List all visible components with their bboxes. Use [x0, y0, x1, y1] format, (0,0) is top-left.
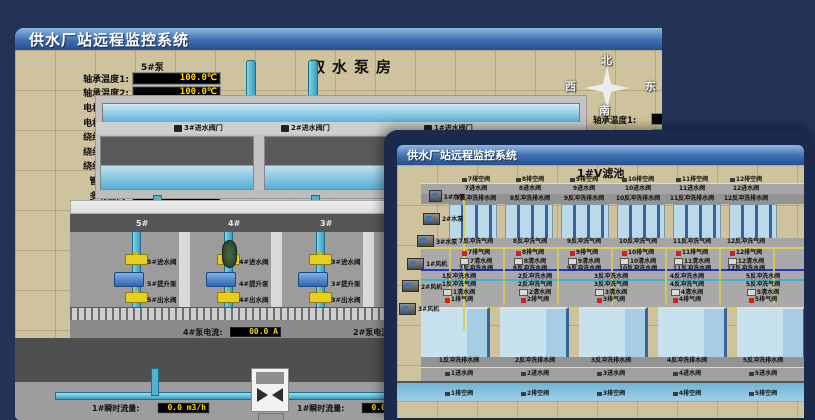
valve-label: 4排气阀 [679, 297, 701, 303]
valve-icon[interactable] [514, 258, 523, 265]
valve-icon[interactable] [749, 372, 754, 376]
valve-label: 3排气阀 [603, 297, 625, 303]
valve-label: 1清水阀 [453, 290, 475, 296]
backwash-drain-valve[interactable]: 9反冲洗排水阀 [557, 196, 611, 202]
valve-label: 3进水阀 [603, 371, 625, 377]
valve-label: 5排气阀 [755, 297, 777, 303]
valve-icon[interactable] [174, 125, 182, 132]
flow-value-left: 0.0 m3/h [157, 402, 210, 414]
filter-cell[interactable] [561, 204, 609, 240]
lower-clear-water-row: 1清水阀2清水阀3清水阀4清水阀5清水阀6清水阀 [421, 289, 804, 296]
inlet-valve-icon[interactable] [125, 254, 148, 265]
valve-label: 11进水阀 [679, 186, 705, 192]
front-window-title: 供水厂站远程监控系统 [407, 147, 517, 163]
valve-label: 9反冲洗气阀 [567, 239, 601, 245]
flow-label-left: 1#瞬时流量: [92, 403, 139, 414]
tank [222, 240, 237, 268]
flow-meter-base [258, 413, 284, 420]
backwash-water-valve[interactable]: 9反冲洗水阀 [557, 266, 611, 272]
clear-water-valve[interactable]: 3清水阀 [573, 289, 649, 296]
valve-icon[interactable] [521, 298, 526, 303]
inlet-valve[interactable]: 3进水阀 [573, 371, 649, 377]
inlet-valve[interactable]: 11进水阀 [665, 186, 719, 192]
backwash-drain-valve[interactable]: 6反冲洗排水阀 [801, 358, 804, 364]
panel-row: 轴承温度1: 100.0℃ [21, 71, 221, 86]
backwash-water-valve[interactable]: 10反冲洗水阀 [611, 266, 665, 272]
inlet-valve-label: 3#进水阀 [331, 256, 360, 266]
flow-meter[interactable] [251, 368, 289, 412]
upper-backwash-drain-row: 7反冲洗排水阀8反冲洗排水阀9反冲洗排水阀10反冲洗排水阀11反冲洗排水阀12反… [449, 196, 773, 202]
lift-pump-label: 4#提升泵 [239, 278, 268, 288]
inlet-valve-label: 5#进水阀 [147, 256, 176, 266]
drain-valve[interactable]: 11排空阀 [665, 177, 719, 183]
valve-icon[interactable] [674, 258, 683, 265]
valve-label: 3清水阀 [605, 290, 627, 296]
valve-icon[interactable] [622, 178, 627, 182]
back-window-title: 供水厂站远程监控系统 [29, 29, 189, 50]
valve-label: 3#进水阀门 [184, 123, 223, 133]
valve-label: 3反冲洗水阀 [594, 274, 628, 280]
scene-title: 取水泵房 [310, 56, 398, 77]
valve-icon[interactable] [620, 258, 629, 265]
valve-label: 11排空阀 [682, 177, 708, 183]
valve-label: 12反冲洗水阀 [727, 266, 765, 272]
valve-label: 1排空阀 [451, 391, 473, 397]
backwash-air-valve[interactable]: 5反冲洗气阀 [725, 282, 801, 288]
valve-label: 12进水阀 [733, 186, 759, 192]
valve-icon[interactable] [749, 392, 754, 396]
backwash-air-valve[interactable]: 1反冲洗气阀 [421, 282, 497, 288]
valve-label: 4反冲洗气阀 [670, 282, 704, 288]
backwash-drain-valve[interactable]: 2反冲洗排水阀 [497, 358, 573, 364]
drain-valve[interactable]: 4排空阀 [649, 391, 725, 397]
valve-label: 8排气阀 [522, 250, 544, 256]
upper-air-release-row: 7排气阀8排气阀9排气阀10排气阀11排气阀12排气阀 [449, 250, 773, 256]
compass: 北 西 南 东 [563, 52, 658, 118]
valve-label: 10排气阀 [628, 250, 654, 256]
valve-icon[interactable] [749, 298, 754, 303]
backwash-drain-valve[interactable]: 3反冲洗排水阀 [573, 358, 649, 364]
valve-icon[interactable] [673, 298, 678, 303]
equipment-label: 1#风机 [426, 259, 447, 268]
valve-label: 1反冲洗水阀 [442, 274, 476, 280]
clear-water-valve[interactable]: 6清水阀 [801, 289, 804, 296]
air-release-valve[interactable]: 9排气阀 [557, 250, 611, 256]
upper-clear-water-row: 7清水阀8清水阀9清水阀10清水阀11清水阀12清水阀 [449, 258, 773, 265]
flow-label-right: 1#瞬时流量: [297, 403, 344, 414]
backwash-water-valve[interactable]: 1反冲洗水阀 [421, 274, 497, 280]
ground [397, 401, 804, 418]
backwash-drain-valve[interactable]: 8反冲洗排水阀 [503, 196, 557, 202]
clear-water-valve[interactable]: 9清水阀 [557, 258, 611, 265]
outlet-valve-label: 5#出水阀 [147, 294, 176, 304]
pump-icon[interactable] [399, 303, 416, 315]
lift-pump[interactable] [298, 272, 328, 287]
compass-east: 东 [645, 78, 656, 94]
pump4-current-value: 00.0 A [229, 326, 282, 338]
pump4-current-label: 4#泵电流: [183, 327, 222, 338]
drain-valve[interactable]: 9排空阀 [557, 177, 611, 183]
valve-label: 2反冲洗排水阀 [515, 358, 555, 364]
valve-label: 7排空阀 [468, 177, 490, 183]
outlet-valve-label: 3#出水阀 [331, 294, 360, 304]
valve-icon[interactable] [673, 372, 678, 376]
valve-label: 12反冲洗排水阀 [724, 196, 768, 202]
compass-north: 北 [601, 52, 612, 68]
backwash-air-valve[interactable]: 12反冲洗气阀 [719, 239, 773, 245]
valve-label: 1反冲洗气阀 [442, 282, 476, 288]
valve-label: 11反冲洗气阀 [673, 239, 711, 245]
pump-icon[interactable] [417, 235, 434, 247]
drain-valve[interactable]: 8排空阀 [503, 177, 557, 183]
pump-bay: 3#进水阀 3#提升泵 3#出水阀 [282, 232, 374, 307]
air-release-valve[interactable]: 12排气阀 [719, 250, 773, 256]
pump-icon[interactable] [423, 213, 440, 225]
equipment-label: 3#风机 [418, 304, 439, 313]
lift-pump-label: 3#提升泵 [331, 278, 360, 288]
backwash-water-valve[interactable]: 12反冲洗水阀 [719, 266, 773, 272]
backwash-drain-valve[interactable]: 5反冲洗排水阀 [725, 358, 801, 364]
air-release-valve[interactable]: 3排气阀 [573, 297, 649, 303]
valve-icon[interactable] [676, 178, 681, 182]
valve-label: 5进水阀 [755, 371, 777, 377]
backwash-drain-valve[interactable]: 11反冲洗排水阀 [665, 196, 719, 202]
backwash-drain-valve[interactable]: 1反冲洗排水阀 [421, 358, 497, 364]
drain-valve[interactable]: 5排空阀 [725, 391, 801, 397]
valve-label: 2排气阀 [527, 297, 549, 303]
valve-icon[interactable] [521, 372, 526, 376]
valve-label: 2#进水阀门 [291, 123, 330, 133]
valve-icon[interactable] [673, 392, 678, 396]
inlet-valve[interactable]: 9进水阀 [557, 186, 611, 192]
valve-label: 8反冲洗水阀 [513, 266, 547, 272]
desktop: 供水厂站远程监控系统 取水泵房 5#泵 轴承温度1: 100.0℃ 轴承温度2:… [0, 0, 815, 420]
air-release-valve[interactable]: 10排气阀 [611, 250, 665, 256]
valve-icon[interactable] [519, 289, 528, 296]
inlet-valve-label: 4#进水阀 [239, 256, 268, 266]
valve-label: 7反冲洗水阀 [459, 266, 493, 272]
inlet-valve[interactable]: 2进水阀 [497, 371, 573, 377]
filter-pool-scene: 1#V滤池 1#水泵 2#水泵 3#水泵 1#风机 2# [397, 165, 804, 418]
clear-water-valve[interactable]: 11清水阀 [665, 258, 719, 265]
air-release-valve[interactable]: 5排气阀 [725, 297, 801, 303]
upper-inlet-valve-row: 7进水阀8进水阀9进水阀10进水阀11进水阀12进水阀 [449, 186, 773, 192]
valve-label: 5反冲洗气阀 [746, 282, 780, 288]
valve-label: 9清水阀 [578, 259, 600, 265]
pump-bay: 5#进水阀 5#提升泵 5#出水阀 [98, 232, 190, 307]
filter-cell[interactable] [579, 307, 648, 359]
back-window-titlebar[interactable]: 供水厂站远程监控系统 [15, 28, 662, 50]
valve-icon[interactable] [462, 251, 467, 256]
valve-label: 7反冲洗排水阀 [456, 196, 496, 202]
valve-label: 8排空阀 [522, 177, 544, 183]
backwash-air-valve[interactable]: 4反冲洗气阀 [649, 282, 725, 288]
flow-meter-valve-icon [257, 388, 283, 402]
valve-icon[interactable] [460, 258, 469, 265]
pump-bay: 4#进水阀 4#提升泵 4#出水阀 [190, 232, 282, 307]
flow-meter-display [256, 372, 284, 384]
valve-label: 9进水阀 [573, 186, 595, 192]
valve-label: 2反冲洗气阀 [518, 282, 552, 288]
outlet-valve-icon[interactable] [309, 292, 332, 303]
valve-icon[interactable] [595, 289, 604, 296]
valve-label: 11排气阀 [682, 250, 708, 256]
valve-label: 10反冲洗水阀 [619, 266, 657, 272]
backwash-air-valve[interactable]: 7反冲洗气阀 [449, 239, 503, 245]
inlet-valve[interactable]: 5进水阀 [725, 371, 801, 377]
valve-icon[interactable] [516, 178, 521, 182]
valve-label: 11反冲洗水阀 [673, 266, 711, 272]
inlet-pipe [246, 60, 256, 98]
filter-cell[interactable] [617, 204, 665, 240]
inlet-valve[interactable]: 7进水阀 [449, 186, 503, 192]
upper-backwash-air-row: 7反冲洗气阀8反冲洗气阀9反冲洗气阀10反冲洗气阀11反冲洗气阀12反冲洗气阀 [449, 239, 773, 245]
drain-valve[interactable]: 6排空阀 [801, 391, 804, 397]
backwash-air-valve[interactable]: 10反冲洗气阀 [611, 239, 665, 245]
filter-cell[interactable] [658, 307, 727, 359]
valve-label: 3反冲洗排水阀 [591, 358, 631, 364]
lower-drain-valve-row: 1排空阀2排空阀3排空阀4排空阀5排空阀6排空阀 [421, 391, 804, 397]
clear-water-valve[interactable]: 2清水阀 [497, 289, 573, 296]
valve-icon[interactable] [568, 258, 577, 265]
pump-icon[interactable] [429, 190, 442, 202]
backwash-drain-valve[interactable]: 7反冲洗排水阀 [449, 196, 503, 202]
valve-icon[interactable] [671, 289, 680, 296]
valve-label: 4进水阀 [679, 371, 701, 377]
backwash-air-valve[interactable]: 9反冲洗气阀 [557, 239, 611, 245]
valve-label: 10清水阀 [630, 259, 656, 265]
panel-value-led: 100.0℃ [132, 72, 221, 85]
equipment-item[interactable]: 2#水泵 [423, 208, 465, 231]
lower-inlet-valve-row: 1进水阀2进水阀3进水阀4进水阀5进水阀6进水阀 [421, 371, 804, 377]
valve-icon[interactable] [676, 251, 681, 256]
valve-label: 4排空阀 [679, 391, 701, 397]
valve-label: 7进水阀 [465, 186, 487, 192]
backwash-water-valve[interactable]: 8反冲洗水阀 [503, 266, 557, 272]
valve-icon[interactable] [516, 251, 521, 256]
window-filter-pool: 供水厂站远程监控系统 1#V滤池 1#水泵 2#水泵 3#水泵 1#风机 [384, 130, 815, 420]
drain-valve[interactable]: 7排空阀 [449, 177, 503, 183]
valve-icon[interactable] [728, 258, 737, 265]
valve-label: 8清水阀 [524, 259, 546, 265]
filter-cell[interactable] [500, 307, 569, 359]
valve-label: 5排空阀 [755, 391, 777, 397]
equipment-label: 2#水泵 [442, 214, 463, 223]
pump-icon[interactable] [402, 280, 419, 292]
backwash-water-valve[interactable]: 11反冲洗水阀 [665, 266, 719, 272]
backwash-air-valve[interactable]: 6反冲洗气阀 [801, 282, 804, 288]
valve-label: 10进水阀 [625, 186, 651, 192]
valve-label: 8进水阀 [519, 186, 541, 192]
valve-icon[interactable] [281, 125, 289, 132]
compass-west: 西 [565, 78, 576, 94]
outlet-valve-icon[interactable] [217, 292, 240, 303]
valve-label: 12清水阀 [738, 259, 764, 265]
valve-label: 4清水阀 [681, 290, 703, 296]
valve-icon[interactable] [730, 178, 735, 182]
valve-label: 9反冲洗排水阀 [564, 196, 604, 202]
filter-cell[interactable] [673, 204, 721, 240]
lift-pump[interactable] [114, 272, 144, 287]
valve-icon[interactable] [597, 372, 602, 376]
air-release-valve[interactable]: 6排气阀 [801, 297, 804, 303]
filter-cell[interactable] [729, 204, 777, 240]
panel-label: 轴承温度1: [21, 72, 132, 85]
backwash-air-valve[interactable]: 3反冲洗气阀 [573, 282, 649, 288]
valve-label: 12排气阀 [736, 250, 762, 256]
valve-icon[interactable] [445, 298, 450, 303]
front-window-titlebar[interactable]: 供水厂站远程监控系统 [397, 145, 804, 165]
lower-air-release-row: 1排气阀2排气阀3排气阀4排气阀5排气阀6排气阀 [421, 297, 804, 303]
gate-valve[interactable]: 2#进水阀门 [281, 123, 330, 133]
inlet-valve[interactable]: 8进水阀 [503, 186, 557, 192]
drain-valve[interactable]: 1排空阀 [421, 391, 497, 397]
inlet-valve[interactable]: 6进水阀 [801, 371, 804, 377]
backwash-air-valve[interactable]: 8反冲洗气阀 [503, 239, 557, 245]
outlet-valve-icon[interactable] [125, 292, 148, 303]
valve-icon[interactable] [570, 251, 575, 256]
valve-label: 5反冲洗排水阀 [743, 358, 783, 364]
inlet-valve[interactable]: 10进水阀 [611, 186, 665, 192]
air-release-valve[interactable]: 4排气阀 [649, 297, 725, 303]
drain-valve[interactable]: 3排空阀 [573, 391, 649, 397]
backwash-water-valve[interactable]: 3反冲洗水阀 [573, 274, 649, 280]
air-release-valve[interactable]: 11排气阀 [665, 250, 719, 256]
backwash-water-valve[interactable]: 2反冲洗水阀 [497, 274, 573, 280]
backwash-water-valve[interactable]: 4反冲洗水阀 [649, 274, 725, 280]
filter-cell[interactable] [505, 204, 553, 240]
backwash-water-valve[interactable]: 5反冲洗水阀 [725, 274, 801, 280]
clear-water-valve[interactable]: 10清水阀 [611, 258, 665, 265]
valve-label: 2进水阀 [527, 371, 549, 377]
air-release-valve[interactable]: 2排气阀 [497, 297, 573, 303]
valve-icon[interactable] [730, 251, 735, 256]
lower-filter-cells [421, 307, 804, 357]
backwash-drain-valve[interactable]: 12反冲洗排水阀 [719, 196, 773, 202]
inlet-valve-icon[interactable] [309, 254, 332, 265]
valve-label: 10排空阀 [628, 177, 654, 183]
backwash-drain-valve[interactable]: 10反冲洗排水阀 [611, 196, 665, 202]
backwash-water-valve[interactable]: 7反冲洗水阀 [449, 266, 503, 272]
upper-drain-valve-row: 7排空阀8排空阀9排空阀10排空阀11排空阀12排空阀 [449, 177, 773, 183]
valve-label: 11清水阀 [684, 259, 710, 265]
lift-pump-label: 5#提升泵 [147, 278, 176, 288]
bay-number: 4# [228, 219, 320, 228]
inlet-valve[interactable]: 12进水阀 [719, 186, 773, 192]
clear-water-valve[interactable]: 8清水阀 [503, 258, 557, 265]
bay-number: 5# [136, 219, 228, 228]
valve-label: 4反冲洗排水阀 [667, 358, 707, 364]
lower-backwash-drain-row: 1反冲洗排水阀2反冲洗排水阀3反冲洗排水阀4反冲洗排水阀5反冲洗排水阀6反冲洗排… [421, 358, 804, 364]
backwash-drain-valve[interactable]: 4反冲洗排水阀 [649, 358, 725, 364]
valve-icon[interactable] [597, 298, 602, 303]
valve-label: 5清水阀 [757, 290, 779, 296]
valve-label: 3反冲洗气阀 [594, 282, 628, 288]
side-led [651, 113, 662, 125]
valve-label: 11反冲洗排水阀 [670, 196, 714, 202]
water-channel [102, 103, 580, 124]
clear-water-valve[interactable]: 7清水阀 [449, 258, 503, 265]
clear-water-valve[interactable]: 1清水阀 [421, 289, 497, 296]
clear-water-valve[interactable]: 4清水阀 [649, 289, 725, 296]
valve-label: 7排气阀 [468, 250, 490, 256]
lift-pump[interactable] [206, 272, 236, 287]
valve-label: 1反冲洗排水阀 [439, 358, 479, 364]
valve-label: 12排空阀 [736, 177, 762, 183]
valve-label: 1进水阀 [451, 371, 473, 377]
valve-label: 3排空阀 [603, 391, 625, 397]
valve-label: 7反冲洗气阀 [459, 239, 493, 245]
inlet-pipe [308, 60, 318, 98]
reservoir-section [100, 136, 254, 190]
valve-icon[interactable] [443, 289, 452, 296]
lower-backwash-air-row: 1反冲洗气阀2反冲洗气阀3反冲洗气阀4反冲洗气阀5反冲洗气阀6反冲洗气阀 [421, 282, 804, 288]
lower-backwash-water-row: 1反冲洗水阀2反冲洗水阀3反冲洗水阀4反冲洗水阀5反冲洗水阀6反冲洗水阀 [421, 274, 804, 280]
valve-label: 4反冲洗水阀 [670, 274, 704, 280]
inlet-valve[interactable]: 1进水阀 [421, 371, 497, 377]
valve-icon[interactable] [747, 289, 756, 296]
valve-label: 8反冲洗气阀 [513, 239, 547, 245]
valve-icon[interactable] [462, 178, 467, 182]
valve-label: 9排空阀 [576, 177, 598, 183]
valve-label: 5反冲洗水阀 [746, 274, 780, 280]
drain-valve[interactable]: 10排空阀 [611, 177, 665, 183]
side-label-bearing1: 轴承温度1: [593, 114, 636, 126]
pump-icon[interactable] [407, 258, 424, 270]
valve-label: 10反冲洗排水阀 [616, 196, 660, 202]
clear-water-valve[interactable]: 12清水阀 [719, 258, 773, 265]
valve-label: 2排空阀 [527, 391, 549, 397]
drain-valve[interactable]: 2排空阀 [497, 391, 573, 397]
valve-label: 12反冲洗气阀 [727, 239, 765, 245]
valve-label: 10反冲洗气阀 [619, 239, 657, 245]
clear-water-valve[interactable]: 5清水阀 [725, 289, 801, 296]
valve-label: 8反冲洗排水阀 [510, 196, 550, 202]
valve-icon[interactable] [622, 251, 627, 256]
valve-label: 2清水阀 [529, 290, 551, 296]
valve-icon[interactable] [570, 178, 575, 182]
valve-label: 9排气阀 [576, 250, 598, 256]
backwash-air-valve[interactable]: 2反冲洗气阀 [497, 282, 573, 288]
drain-valve[interactable]: 12排空阀 [719, 177, 773, 183]
valve-label: 9反冲洗水阀 [567, 266, 601, 272]
air-release-valve[interactable]: 8排气阀 [503, 250, 557, 256]
valve-icon[interactable] [445, 372, 450, 376]
upper-filter-cells [449, 204, 785, 238]
outlet-valve-label: 4#出水阀 [239, 294, 268, 304]
valve-label: 1排气阀 [451, 297, 473, 303]
valve-label: 2反冲洗水阀 [518, 274, 552, 280]
upper-backwash-water-row: 7反冲洗水阀8反冲洗水阀9反冲洗水阀10反冲洗水阀11反冲洗水阀12反冲洗水阀 [449, 266, 773, 272]
filter-cell[interactable] [737, 307, 804, 359]
air-release-valve[interactable]: 7排气阀 [449, 250, 503, 256]
branch-pipe [151, 368, 159, 396]
valve-icon[interactable] [521, 392, 526, 396]
backwash-air-valve[interactable]: 11反冲洗气阀 [665, 239, 719, 245]
valve-icon[interactable] [597, 392, 602, 396]
valve-icon[interactable] [445, 392, 450, 396]
backwash-water-valve[interactable]: 6反冲洗水阀 [801, 274, 804, 280]
inlet-valve[interactable]: 4进水阀 [649, 371, 725, 377]
gate-valve[interactable]: 3#进水阀门 [174, 123, 223, 133]
air-release-valve[interactable]: 1排气阀 [421, 297, 497, 303]
valve-label: 7清水阀 [470, 259, 492, 265]
